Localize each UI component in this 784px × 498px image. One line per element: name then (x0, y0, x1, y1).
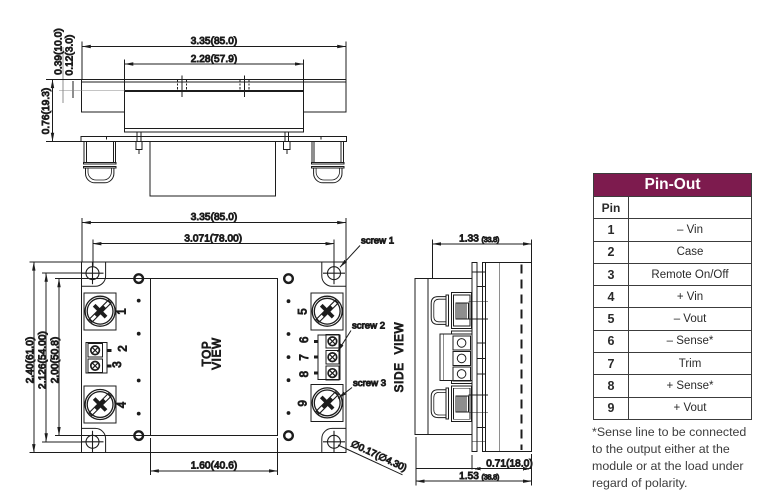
svg-text:9: 9 (298, 399, 310, 406)
svg-text:2.00(50.8): 2.00(50.8) (50, 337, 61, 384)
svg-text:0.39(10.0): 0.39(10.0) (54, 28, 65, 75)
svg-text:1: 1 (117, 308, 129, 315)
svg-text:2: 2 (118, 344, 130, 351)
svg-text:screw 3: screw 3 (353, 378, 386, 389)
svg-text:3.071(78.00): 3.071(78.00) (184, 233, 242, 244)
svg-text:3: 3 (112, 361, 124, 368)
svg-text:(38.8): (38.8) (482, 473, 500, 482)
svg-text:3.35(85.0): 3.35(85.0) (191, 36, 238, 47)
svg-text:screw 2: screw 2 (352, 321, 385, 332)
svg-text:0.76(19.3): 0.76(19.3) (41, 88, 52, 135)
svg-text:3.35(85.0): 3.35(85.0) (191, 212, 238, 223)
svg-text:2.126(54.00): 2.126(54.00) (37, 331, 48, 389)
svg-text:4: 4 (117, 401, 129, 408)
svg-text:(33.8): (33.8) (482, 235, 500, 244)
svg-text:∅0.17(∅4.30): ∅0.17(∅4.30) (349, 439, 408, 475)
svg-text:1.33: 1.33 (459, 234, 479, 245)
svg-text:1.60(40.6): 1.60(40.6) (191, 460, 238, 471)
svg-text:1.53: 1.53 (459, 471, 479, 482)
svg-text:screw 1: screw 1 (361, 236, 394, 247)
svg-text:2.28(57.9): 2.28(57.9) (191, 54, 238, 65)
svg-text:VIEW: VIEW (212, 337, 224, 370)
svg-text:SIDE VIEW: SIDE VIEW (394, 322, 406, 393)
svg-text:7: 7 (299, 353, 311, 360)
svg-text:6: 6 (299, 336, 311, 343)
svg-text:0.12(3.0): 0.12(3.0) (64, 35, 75, 76)
svg-text:5: 5 (298, 308, 310, 315)
svg-text:8: 8 (299, 370, 311, 377)
svg-text:0.71(18.0): 0.71(18.0) (486, 459, 533, 470)
svg-text:2.40(61.0): 2.40(61.0) (25, 337, 36, 384)
